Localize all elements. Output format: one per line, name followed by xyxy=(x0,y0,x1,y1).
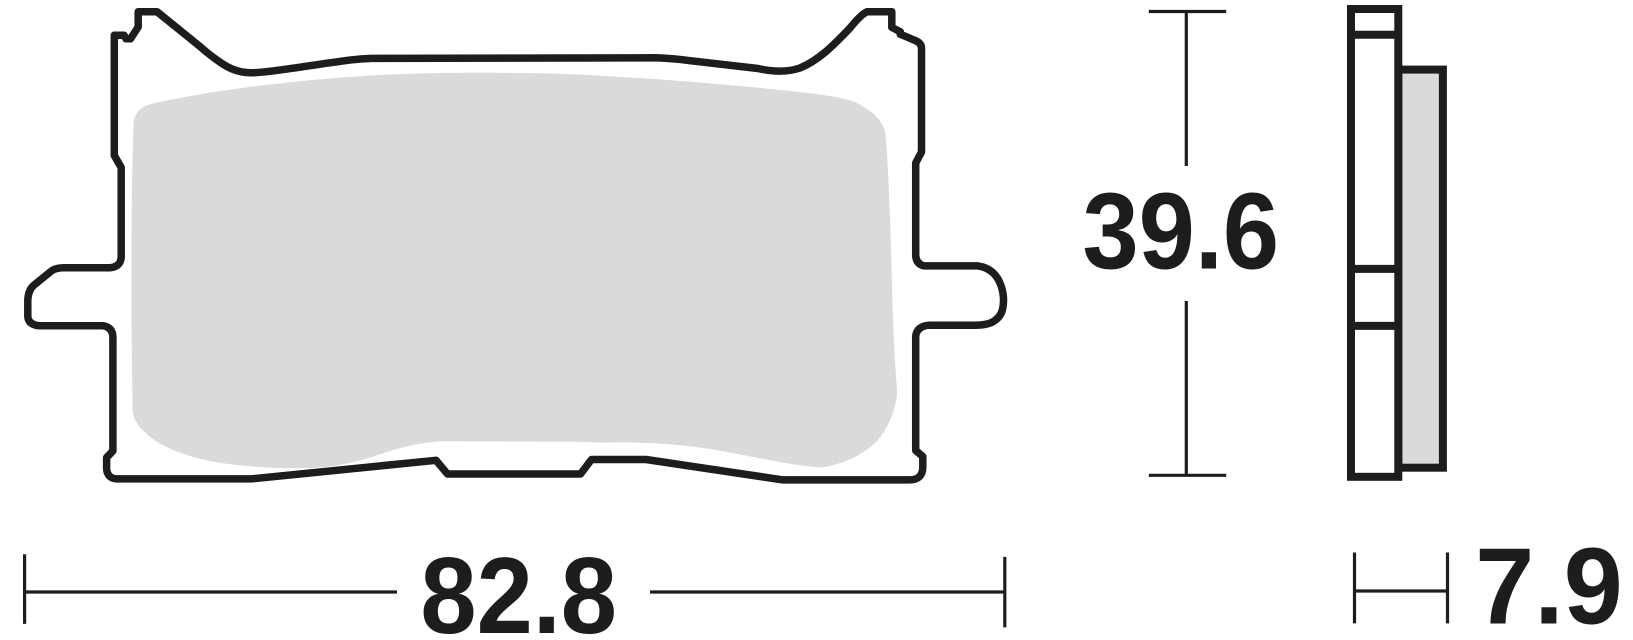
svg-text:82.8: 82.8 xyxy=(420,535,617,640)
svg-text:39.6: 39.6 xyxy=(1083,171,1280,293)
svg-text:7.9: 7.9 xyxy=(1475,525,1622,640)
